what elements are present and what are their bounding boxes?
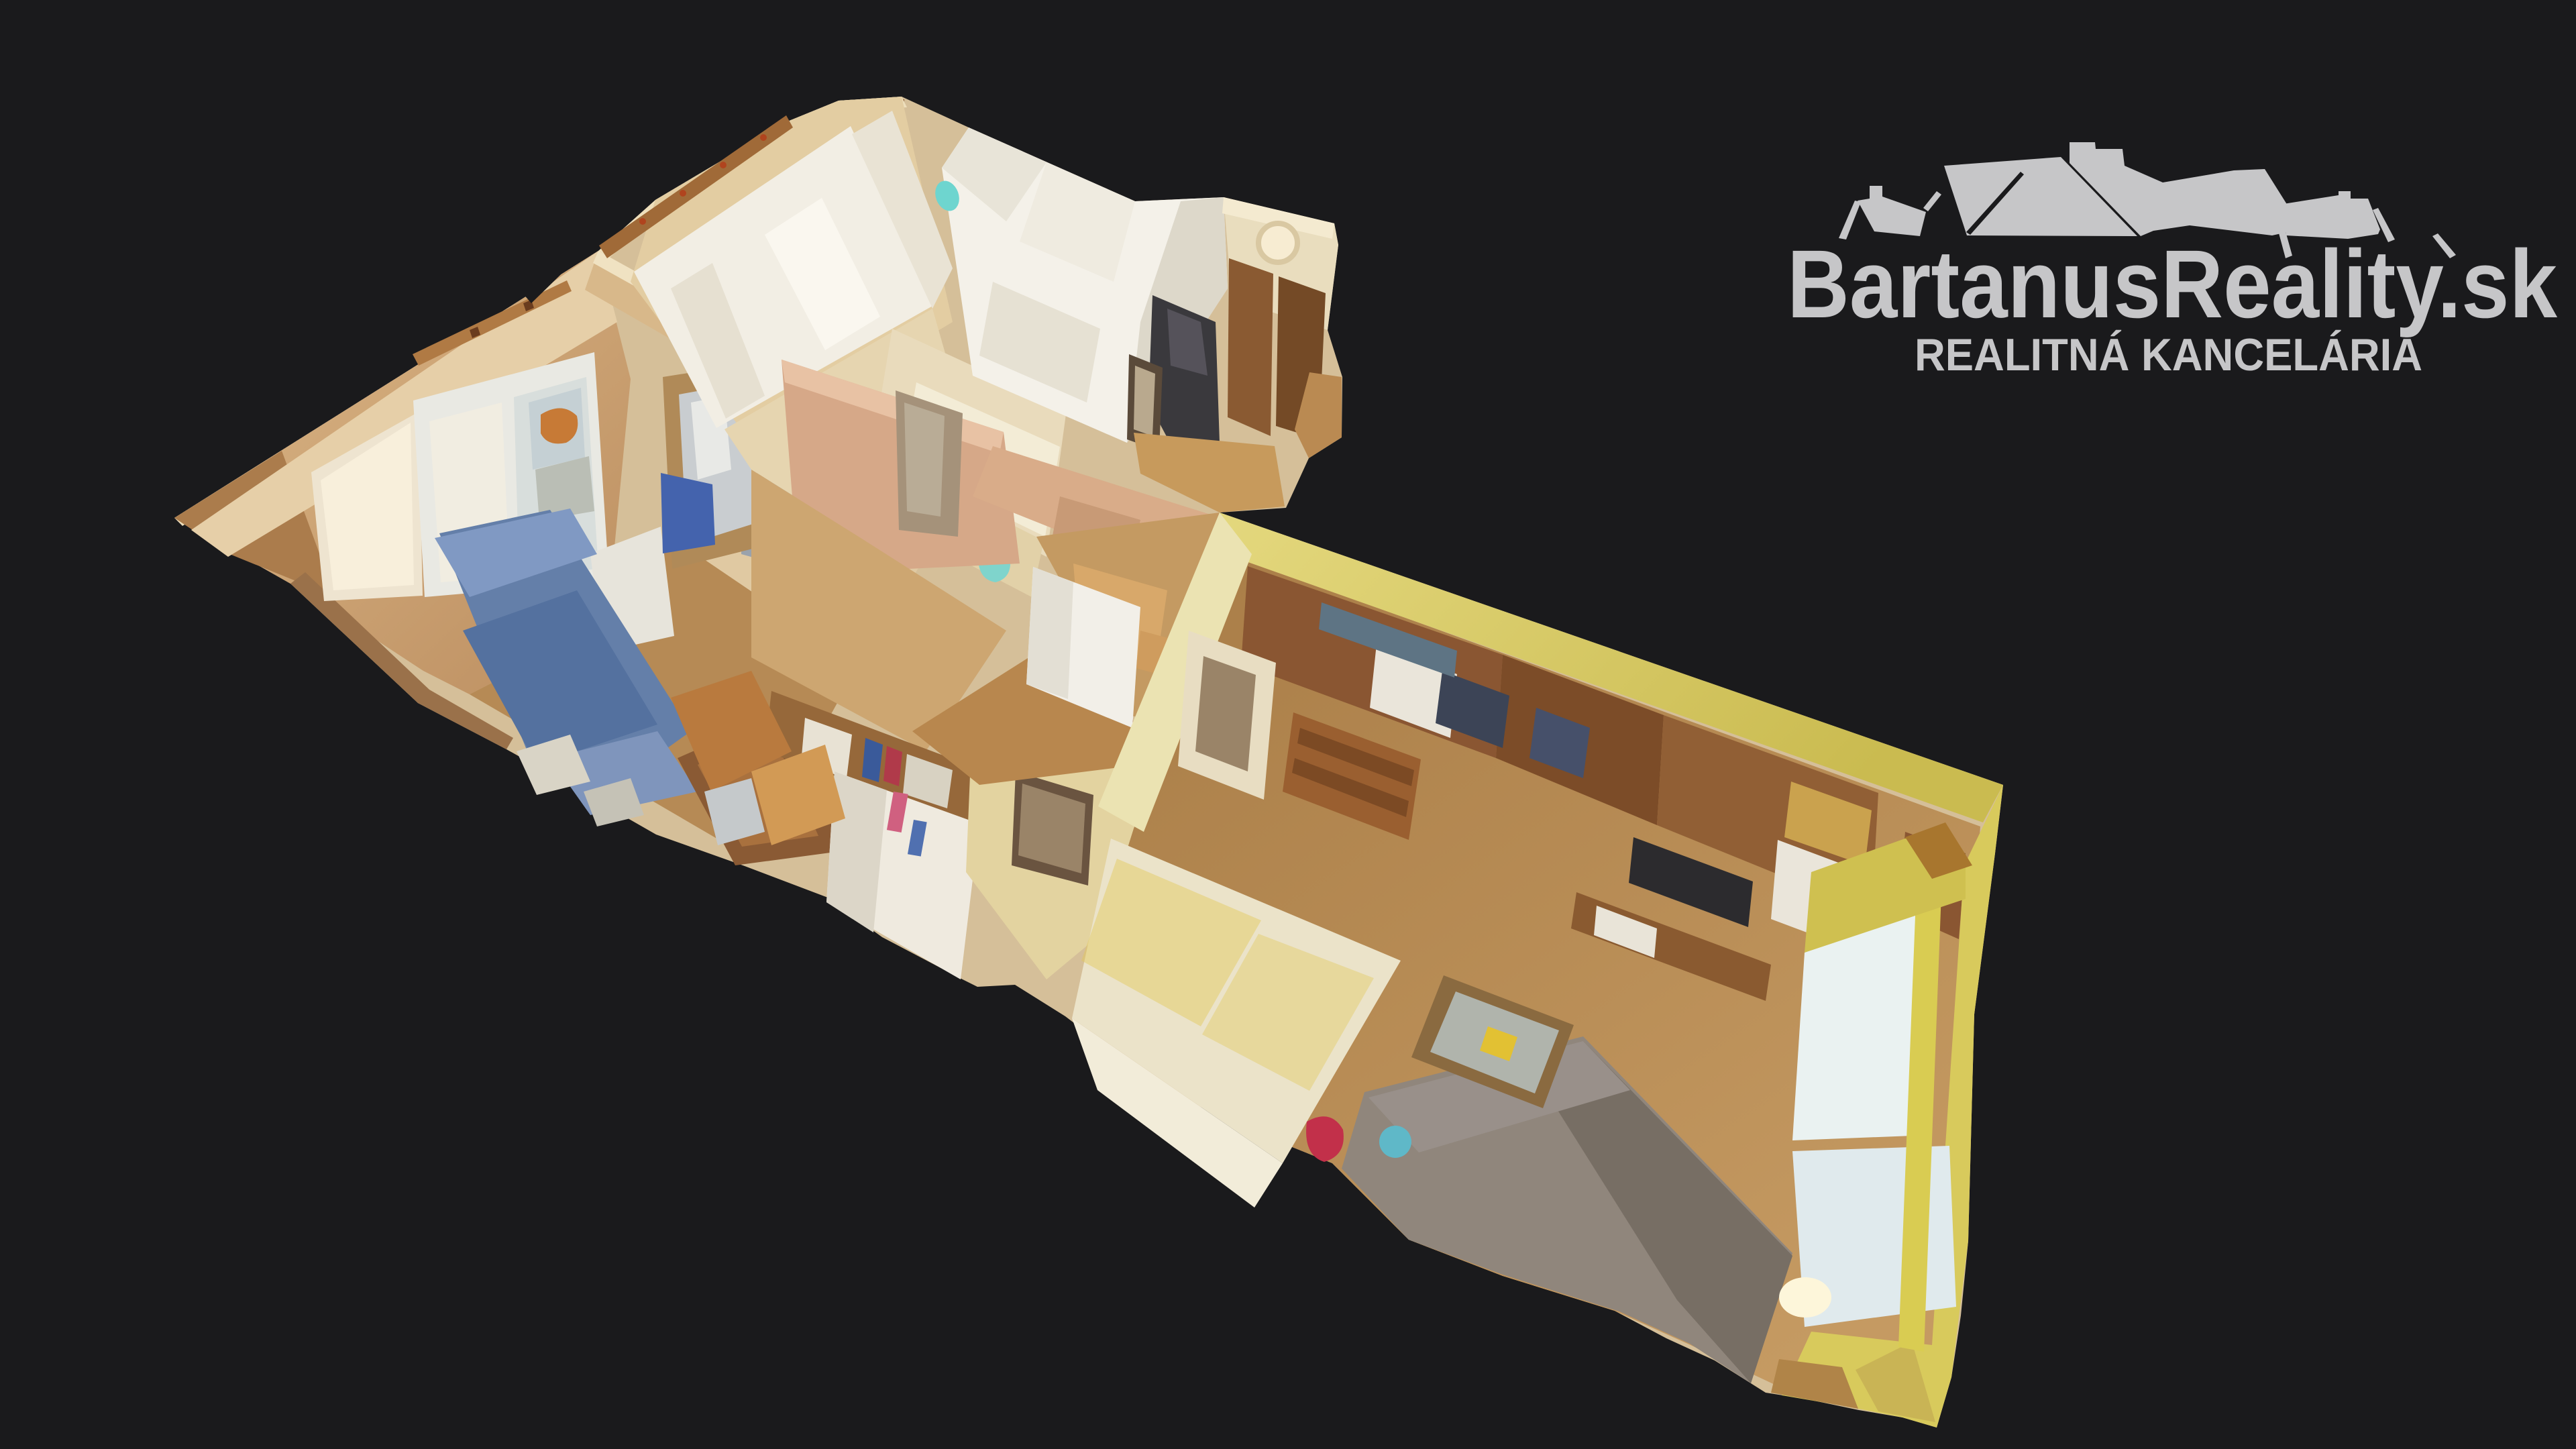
svg-text:BartanusReality.sk: BartanusReality.sk (1787, 230, 2558, 338)
svg-text:REALITNÁ KANCELÁRIA: REALITNÁ KANCELÁRIA (1915, 329, 2422, 380)
